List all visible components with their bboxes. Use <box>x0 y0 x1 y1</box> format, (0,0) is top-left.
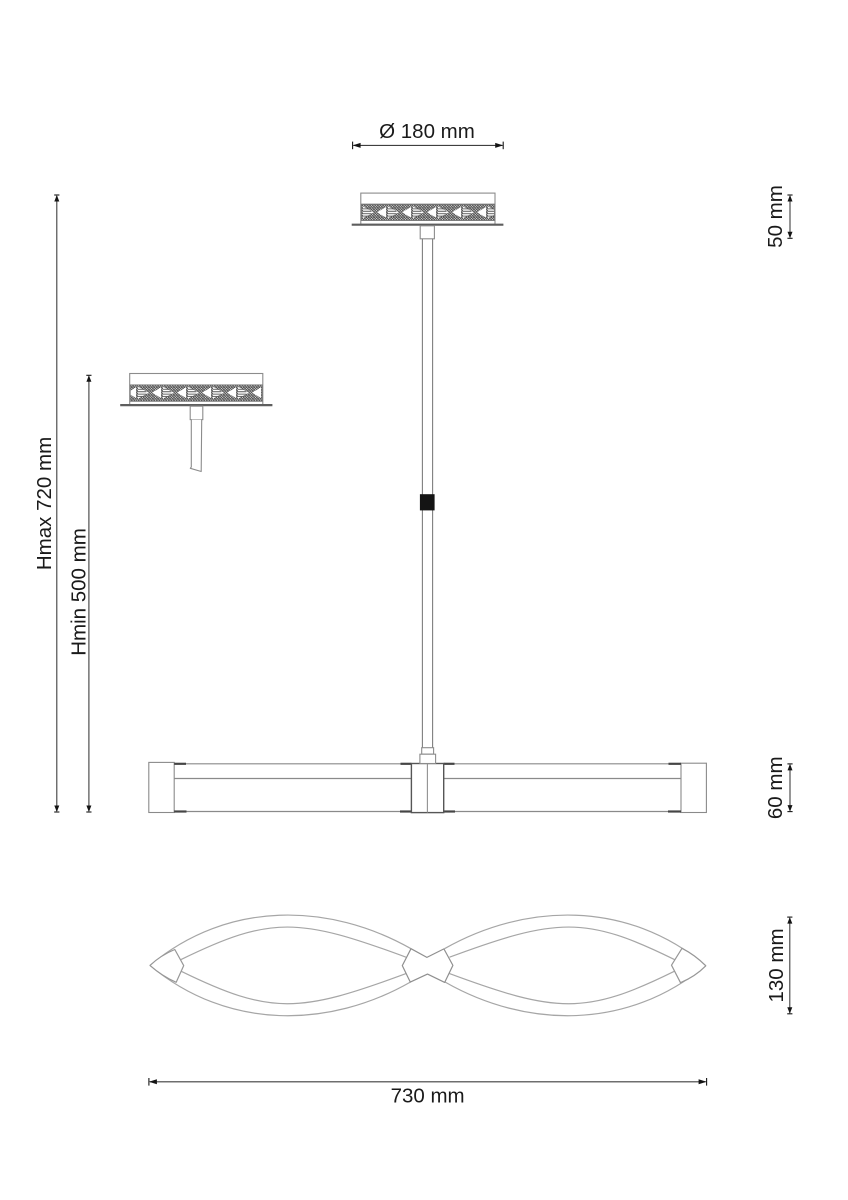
svg-text:60 mm: 60 mm <box>764 756 787 819</box>
svg-text:50 mm: 50 mm <box>764 185 787 248</box>
svg-text:130 mm: 130 mm <box>765 928 788 1002</box>
svg-text:730 mm: 730 mm <box>391 1085 465 1108</box>
svg-text:Ø 180 mm: Ø 180 mm <box>379 120 475 143</box>
svg-text:Hmax 720 mm: Hmax 720 mm <box>33 437 56 570</box>
svg-text:Hmin 500 mm: Hmin 500 mm <box>68 528 91 656</box>
